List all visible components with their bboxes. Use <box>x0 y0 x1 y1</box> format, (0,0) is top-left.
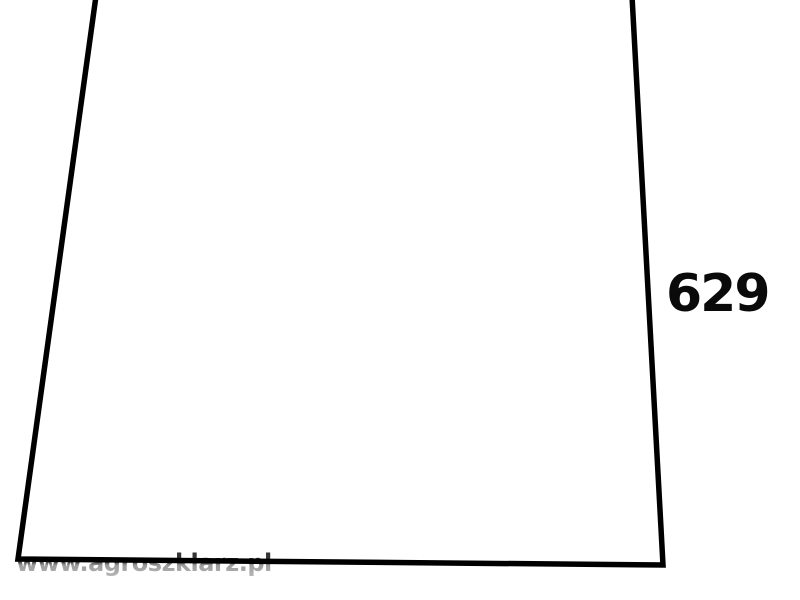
diagram-canvas: www.agroszklarz.pl 629 <box>0 0 800 600</box>
part-number-label: 629 <box>666 264 769 324</box>
glass-pane-edge-path <box>18 0 663 565</box>
